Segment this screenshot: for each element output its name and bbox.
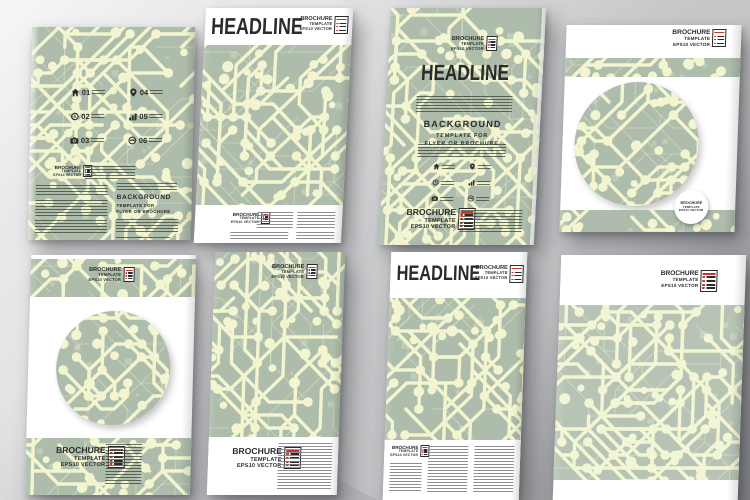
brochure-4: BROCHURE TEMPLATE EPS10 VECTOR BROCHURE …	[559, 25, 741, 232]
brochure-template-logo: BROCHURE TEMPLATE EPS10 VECTOR	[660, 270, 718, 292]
brochure-template-logo: BROCHURE TEMPLATE EPS10 VECTOR	[451, 36, 497, 51]
placeholder-text	[441, 181, 454, 185]
checklist-icon	[700, 270, 718, 292]
logo-text: BROCHURE TEMPLATE EPS10 VECTOR	[406, 208, 457, 230]
feature-number: 05	[139, 112, 148, 121]
placeholder-text	[117, 183, 177, 190]
brochure-5: BROCHURE TEMPLATE EPS10 VECTOR BROCHURE …	[25, 255, 196, 495]
logo-line3: EPS10 VECTOR	[271, 275, 304, 279]
feature-number: 06	[139, 136, 148, 145]
brochure-3: BROCHURE TEMPLATE EPS10 VECTOR HEADLINE …	[379, 8, 546, 245]
camera-icon	[431, 195, 438, 202]
brochure-template-logo: BROCHURE TEMPLATE EPS10 VECTOR	[672, 29, 727, 47]
logo-text: BROCHURE TEMPLATE EPS10 VECTOR	[390, 445, 418, 458]
circuit-circle	[572, 82, 700, 206]
logo-line1: BROCHURE	[672, 29, 710, 36]
logo-line3: EPS10 VECTOR	[451, 47, 484, 51]
logo-text: BROCHURE TEMPLATE EPS10 VECTOR	[53, 165, 81, 178]
placeholder-text	[459, 210, 522, 232]
placeholder-text	[417, 144, 506, 158]
headline-text: HEADLINE	[387, 60, 543, 86]
caption-line2: TEMPLATE FOR	[384, 132, 539, 140]
logo-line3: EPS10 VECTOR	[88, 278, 121, 282]
feature-item: 03	[70, 136, 118, 145]
placeholder-text	[116, 237, 170, 240]
feature-item: 02	[70, 112, 118, 121]
logo-line3: EPS10 VECTOR	[390, 454, 418, 458]
placeholder-text	[85, 166, 135, 179]
cover-header: HEADLINE BROCHURE TEMPLATE EPS10 VECTOR	[390, 252, 528, 298]
placeholder-text	[92, 114, 105, 119]
feature-item	[467, 195, 493, 202]
placeholder-text	[92, 90, 105, 95]
circuit-circle	[55, 311, 172, 425]
brochure-template-logo: BROCHURE TEMPLATE EPS10 VECTOR	[299, 16, 349, 34]
cover-footer: BROCHURE TEMPLATE EPS10 VECTOR	[194, 205, 343, 243]
camera-icon	[70, 136, 79, 145]
logo-line3: EPS10 VECTOR	[672, 42, 710, 47]
feature-item: 04	[129, 88, 177, 97]
phone-icon	[128, 136, 137, 145]
checklist-icon	[334, 16, 349, 34]
brochure-6: BROCHURE TEMPLATE EPS10 VECTOR BROCHURE …	[207, 252, 345, 495]
placeholder-text	[91, 138, 104, 143]
feature-number: 04	[140, 88, 149, 97]
caption-line1: BACKGROUND	[385, 118, 541, 132]
logo-text: BROCHURE TEMPLATE EPS10 VECTOR	[232, 447, 282, 469]
placeholder-text	[105, 444, 142, 484]
placeholder-text	[297, 212, 336, 229]
placeholder-text	[416, 96, 513, 114]
logo-line3: EPS10 VECTOR	[660, 283, 698, 288]
logo-line3: EPS10 VECTOR	[231, 221, 259, 225]
logo-text: BROCHURE TEMPLATE EPS10 VECTOR	[56, 446, 106, 468]
checklist-icon	[712, 29, 727, 47]
chart-icon	[128, 112, 137, 121]
logo-line3: EPS10 VECTOR	[406, 224, 456, 230]
feature-number: 03	[81, 136, 90, 145]
cover-footer: BROCHURE TEMPLATE EPS10 VECTOR	[383, 440, 521, 500]
placeholder-text	[35, 220, 107, 233]
caption-line3: FLYER OR BROCHURE	[116, 209, 180, 215]
chart-icon	[468, 179, 475, 186]
placeholder-text	[478, 165, 491, 169]
home-icon	[433, 163, 440, 170]
feature-number: 01	[82, 88, 91, 97]
brochure-8: BROCHURE TEMPLATE EPS10 VECTOR	[553, 255, 747, 500]
logo-text: BROCHURE TEMPLATE EPS10 VECTOR	[88, 267, 121, 282]
clock-icon	[70, 112, 79, 121]
placeholder-text	[36, 185, 108, 196]
placeholder-text	[477, 181, 490, 185]
home-icon	[71, 88, 80, 97]
caption-column: BACKGROUND TEMPLATE FOR FLYER OR BROCHUR…	[116, 183, 181, 240]
placeholder-text	[150, 114, 163, 119]
logo-line3: EPS10 VECTOR	[56, 462, 106, 468]
brochure-7: HEADLINE BROCHURE TEMPLATE EPS10 VECTOR …	[383, 252, 528, 500]
pin-icon	[129, 88, 138, 97]
logo-text: BROCHURE TEMPLATE EPS10 VECTOR	[451, 36, 484, 51]
backdrop: 01 04 02 05 03	[0, 0, 750, 500]
feature-item	[468, 179, 494, 186]
logo-line3: EPS10 VECTOR	[53, 174, 81, 178]
cover-header: HEADLINE BROCHURE TEMPLATE EPS10 VECTOR	[204, 8, 353, 45]
checklist-icon	[509, 265, 524, 283]
feature-item	[433, 163, 459, 170]
logo-text: BROCHURE TEMPLATE EPS10 VECTOR	[679, 201, 704, 213]
feature-item	[431, 195, 457, 202]
feature-item: 06	[128, 136, 176, 145]
logo-line1: BROCHURE	[660, 270, 698, 277]
logo-text: BROCHURE TEMPLATE EPS10 VECTOR	[299, 16, 332, 31]
feature-item	[469, 163, 495, 170]
pin-icon	[469, 163, 476, 170]
placeholder-text	[35, 200, 107, 216]
logo-text: BROCHURE TEMPLATE EPS10 VECTOR	[672, 29, 711, 47]
placeholder-text	[116, 219, 178, 234]
placeholder-text	[427, 446, 469, 492]
brochure-template-logo: BROCHURE TEMPLATE EPS10 VECTOR	[390, 445, 429, 458]
clock-icon	[432, 179, 439, 186]
placeholder-text	[296, 232, 334, 241]
caption-line1: BACKGROUND	[117, 193, 181, 203]
feature-item	[432, 179, 458, 186]
circuit-pattern	[196, 45, 351, 205]
logo-line3: EPS10 VECTOR	[299, 27, 332, 31]
brochure-1: 01 04 02 05 03	[28, 27, 195, 240]
placeholder-text	[149, 138, 162, 143]
background-caption: BACKGROUND TEMPLATE FOR FLYER OR BROCHUR…	[116, 193, 180, 216]
circuit-pattern	[385, 298, 526, 440]
logo-line1: BROCHURE	[406, 208, 456, 218]
circuit-band	[565, 58, 741, 77]
checklist-icon	[123, 267, 134, 282]
logo-line1: BROCHURE	[232, 447, 282, 457]
placeholder-text	[150, 90, 163, 95]
logo-text: BROCHURE TEMPLATE EPS10 VECTOR	[271, 264, 304, 279]
placeholder-text	[476, 197, 489, 201]
circuit-band	[559, 210, 735, 232]
checklist-icon	[306, 264, 318, 279]
feature-item: 01	[71, 88, 119, 97]
brochure-template-logo: BROCHURE TEMPLATE EPS10 VECTOR	[271, 264, 317, 279]
brochure-template-logo: BROCHURE TEMPLATE EPS10 VECTOR	[475, 265, 524, 283]
logo-text: BROCHURE TEMPLATE EPS10 VECTOR	[660, 270, 699, 288]
cover-footer: BROCHURE TEMPLATE EPS10 VECTOR	[207, 437, 339, 495]
checklist-icon	[486, 36, 498, 51]
feature-list: 01 04 02 05 03	[70, 88, 177, 145]
placeholder-text	[230, 232, 288, 241]
brochure-2: HEADLINE BROCHURE TEMPLATE EPS10 VECTOR …	[194, 8, 353, 243]
circuit-panel	[553, 305, 744, 480]
feature-list	[431, 163, 495, 202]
logo-line3: EPS10 VECTOR	[679, 209, 703, 212]
logo-line3: EPS10 VECTOR	[232, 463, 282, 469]
brochure-template-logo: BROCHURE TEMPLATE EPS10 VECTOR	[88, 267, 134, 282]
logo-text: BROCHURE TEMPLATE EPS10 VECTOR	[475, 265, 508, 280]
phone-icon	[467, 195, 474, 202]
feature-number: 02	[81, 112, 90, 121]
placeholder-text	[442, 165, 455, 169]
placeholder-text	[473, 446, 515, 492]
logo-line3: EPS10 VECTOR	[475, 276, 508, 280]
placeholder-text	[389, 463, 422, 491]
placeholder-text	[257, 212, 294, 229]
placeholder-text	[440, 197, 453, 201]
logo-text: BROCHURE TEMPLATE EPS10 VECTOR	[231, 212, 260, 225]
placeholder-text	[277, 443, 333, 489]
logo-line1: BROCHURE	[56, 446, 106, 456]
feature-item: 05	[128, 112, 176, 121]
